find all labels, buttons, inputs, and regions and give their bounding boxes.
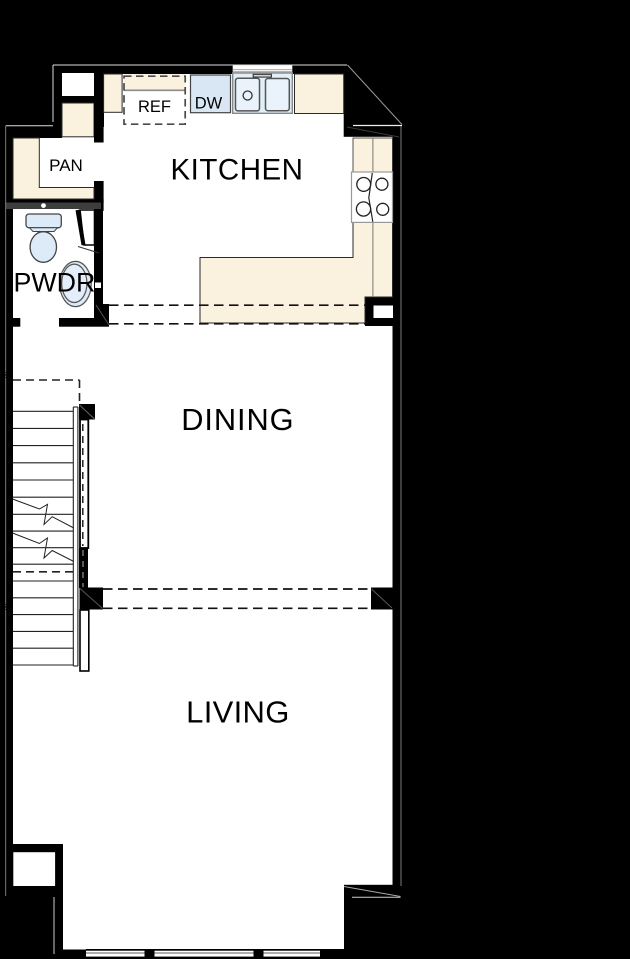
svg-text:W: W (80, 319, 87, 326)
svg-text:KITCHEN: KITCHEN (171, 154, 304, 187)
svg-text:LIVING: LIVING (186, 695, 289, 730)
svg-text:W: W (4, 603, 11, 610)
svg-text:DINING: DINING (181, 402, 294, 437)
svg-text:REF: REF (138, 98, 171, 116)
svg-text:PWDR: PWDR (14, 268, 96, 298)
svg-text:PAN: PAN (49, 156, 83, 175)
svg-text:DW: DW (195, 95, 223, 113)
svg-text:W: W (4, 371, 11, 378)
